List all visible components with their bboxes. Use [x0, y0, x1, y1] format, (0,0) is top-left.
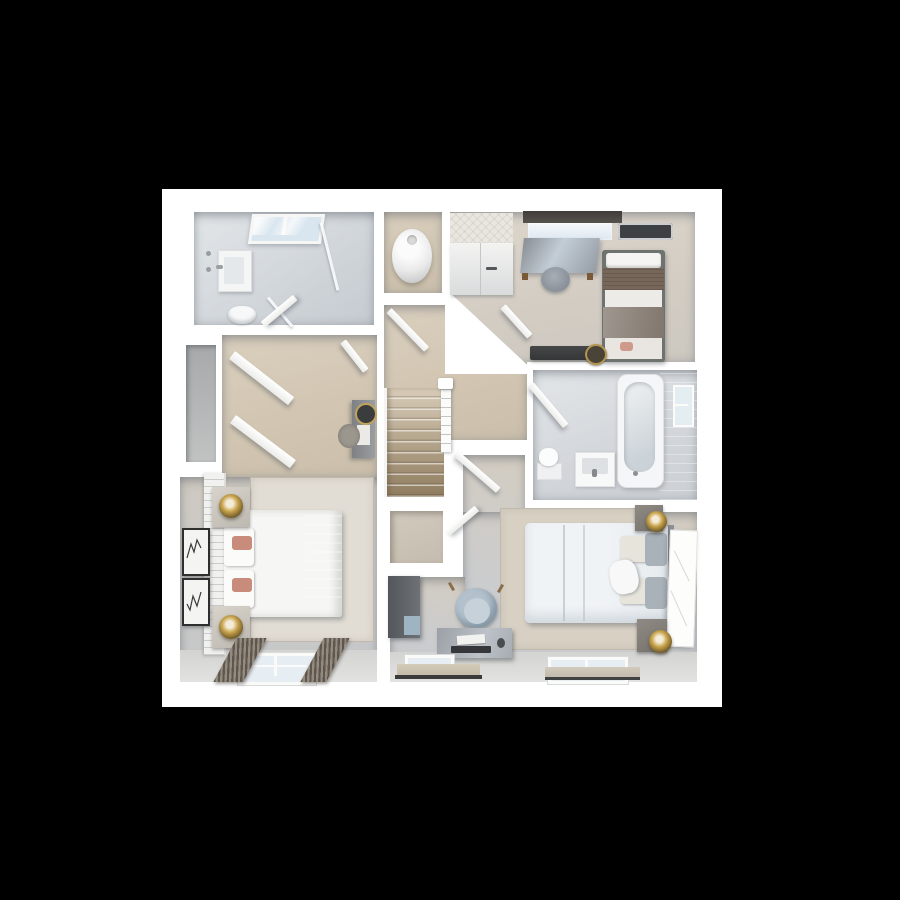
framed-art-2 [182, 578, 210, 626]
bedroom3-single-bed [602, 250, 665, 362]
storage-cupboard [390, 511, 443, 563]
wardrobe-divider [480, 243, 481, 295]
desk-mouse [497, 638, 505, 648]
bedroom2-chair [455, 588, 497, 628]
ensuite-vanity [218, 250, 252, 292]
bed3-foot-sheet [605, 338, 662, 359]
dresser-mirror [355, 403, 377, 425]
basin-tap [216, 265, 223, 269]
pink-cushion-1 [232, 536, 252, 550]
bed3-pillow [606, 253, 661, 268]
bedroom2-bed [525, 523, 668, 623]
round-basket [585, 344, 607, 365]
framed-art-1 [182, 528, 210, 576]
bed3-pink-cushion [620, 342, 633, 351]
chair-seat [464, 598, 490, 624]
art-squiggle-2 [184, 580, 204, 620]
ensuite-skylight [248, 214, 325, 244]
skylight-glare [252, 217, 316, 235]
family-toilet [539, 448, 558, 466]
bed3-sheet [605, 290, 662, 307]
pink-throw [305, 512, 342, 598]
staircase [384, 388, 444, 497]
mirror-reflection-lines [667, 531, 695, 645]
ceiling-vent [618, 223, 673, 240]
bed2-grey-pillow-2 [645, 577, 667, 609]
bed2-lamp-2 [649, 630, 672, 653]
bedroom3-wardrobe [450, 243, 513, 295]
gold-lamp-2 [219, 615, 243, 639]
desk-paper [457, 634, 486, 645]
pink-cushion-2 [232, 578, 252, 592]
ensuite-toilet [228, 306, 256, 324]
bedroom2-desk [437, 628, 512, 658]
duvet-crease-1 [563, 525, 565, 621]
shower-head [206, 267, 211, 272]
wardrobe-handle [486, 267, 497, 270]
blue-storage-box [404, 616, 420, 635]
banister [441, 382, 451, 452]
duvet-crease-2 [583, 525, 585, 621]
bathroom-window [673, 385, 694, 427]
gold-lamp-1 [219, 494, 243, 518]
desk-keyboard [451, 646, 491, 653]
newel-post [438, 378, 453, 389]
bedroom3-stool [541, 267, 570, 292]
bathtub-basin [624, 382, 655, 472]
floorplan-canvas [162, 189, 722, 707]
desk-leg-right [587, 273, 593, 280]
basin-tap2 [592, 469, 597, 477]
bathtub [617, 374, 664, 488]
bathroom-window-mullion [675, 404, 688, 406]
window-right-sill [545, 667, 640, 677]
storage-alcove [186, 345, 216, 462]
bed3-grey-blanket [603, 307, 664, 338]
round-rug [338, 424, 360, 448]
bed2-grey-pillow-1 [645, 533, 667, 566]
bathtub-tap [633, 471, 638, 476]
ensuite-basin [224, 257, 244, 284]
bed3-brown-blanket [603, 268, 664, 290]
bedroom3-pelmet [523, 211, 622, 223]
cylinder-cap [407, 235, 417, 245]
window-left-edge [395, 675, 482, 679]
basin-unit [575, 452, 615, 487]
wardrobe-quilted-top [450, 213, 513, 243]
art-squiggle-1 [184, 530, 204, 570]
leaning-mirror [666, 530, 698, 648]
desk-leg-left [522, 273, 528, 280]
shower-control [206, 251, 211, 256]
bed2-lamp-1 [646, 511, 667, 532]
